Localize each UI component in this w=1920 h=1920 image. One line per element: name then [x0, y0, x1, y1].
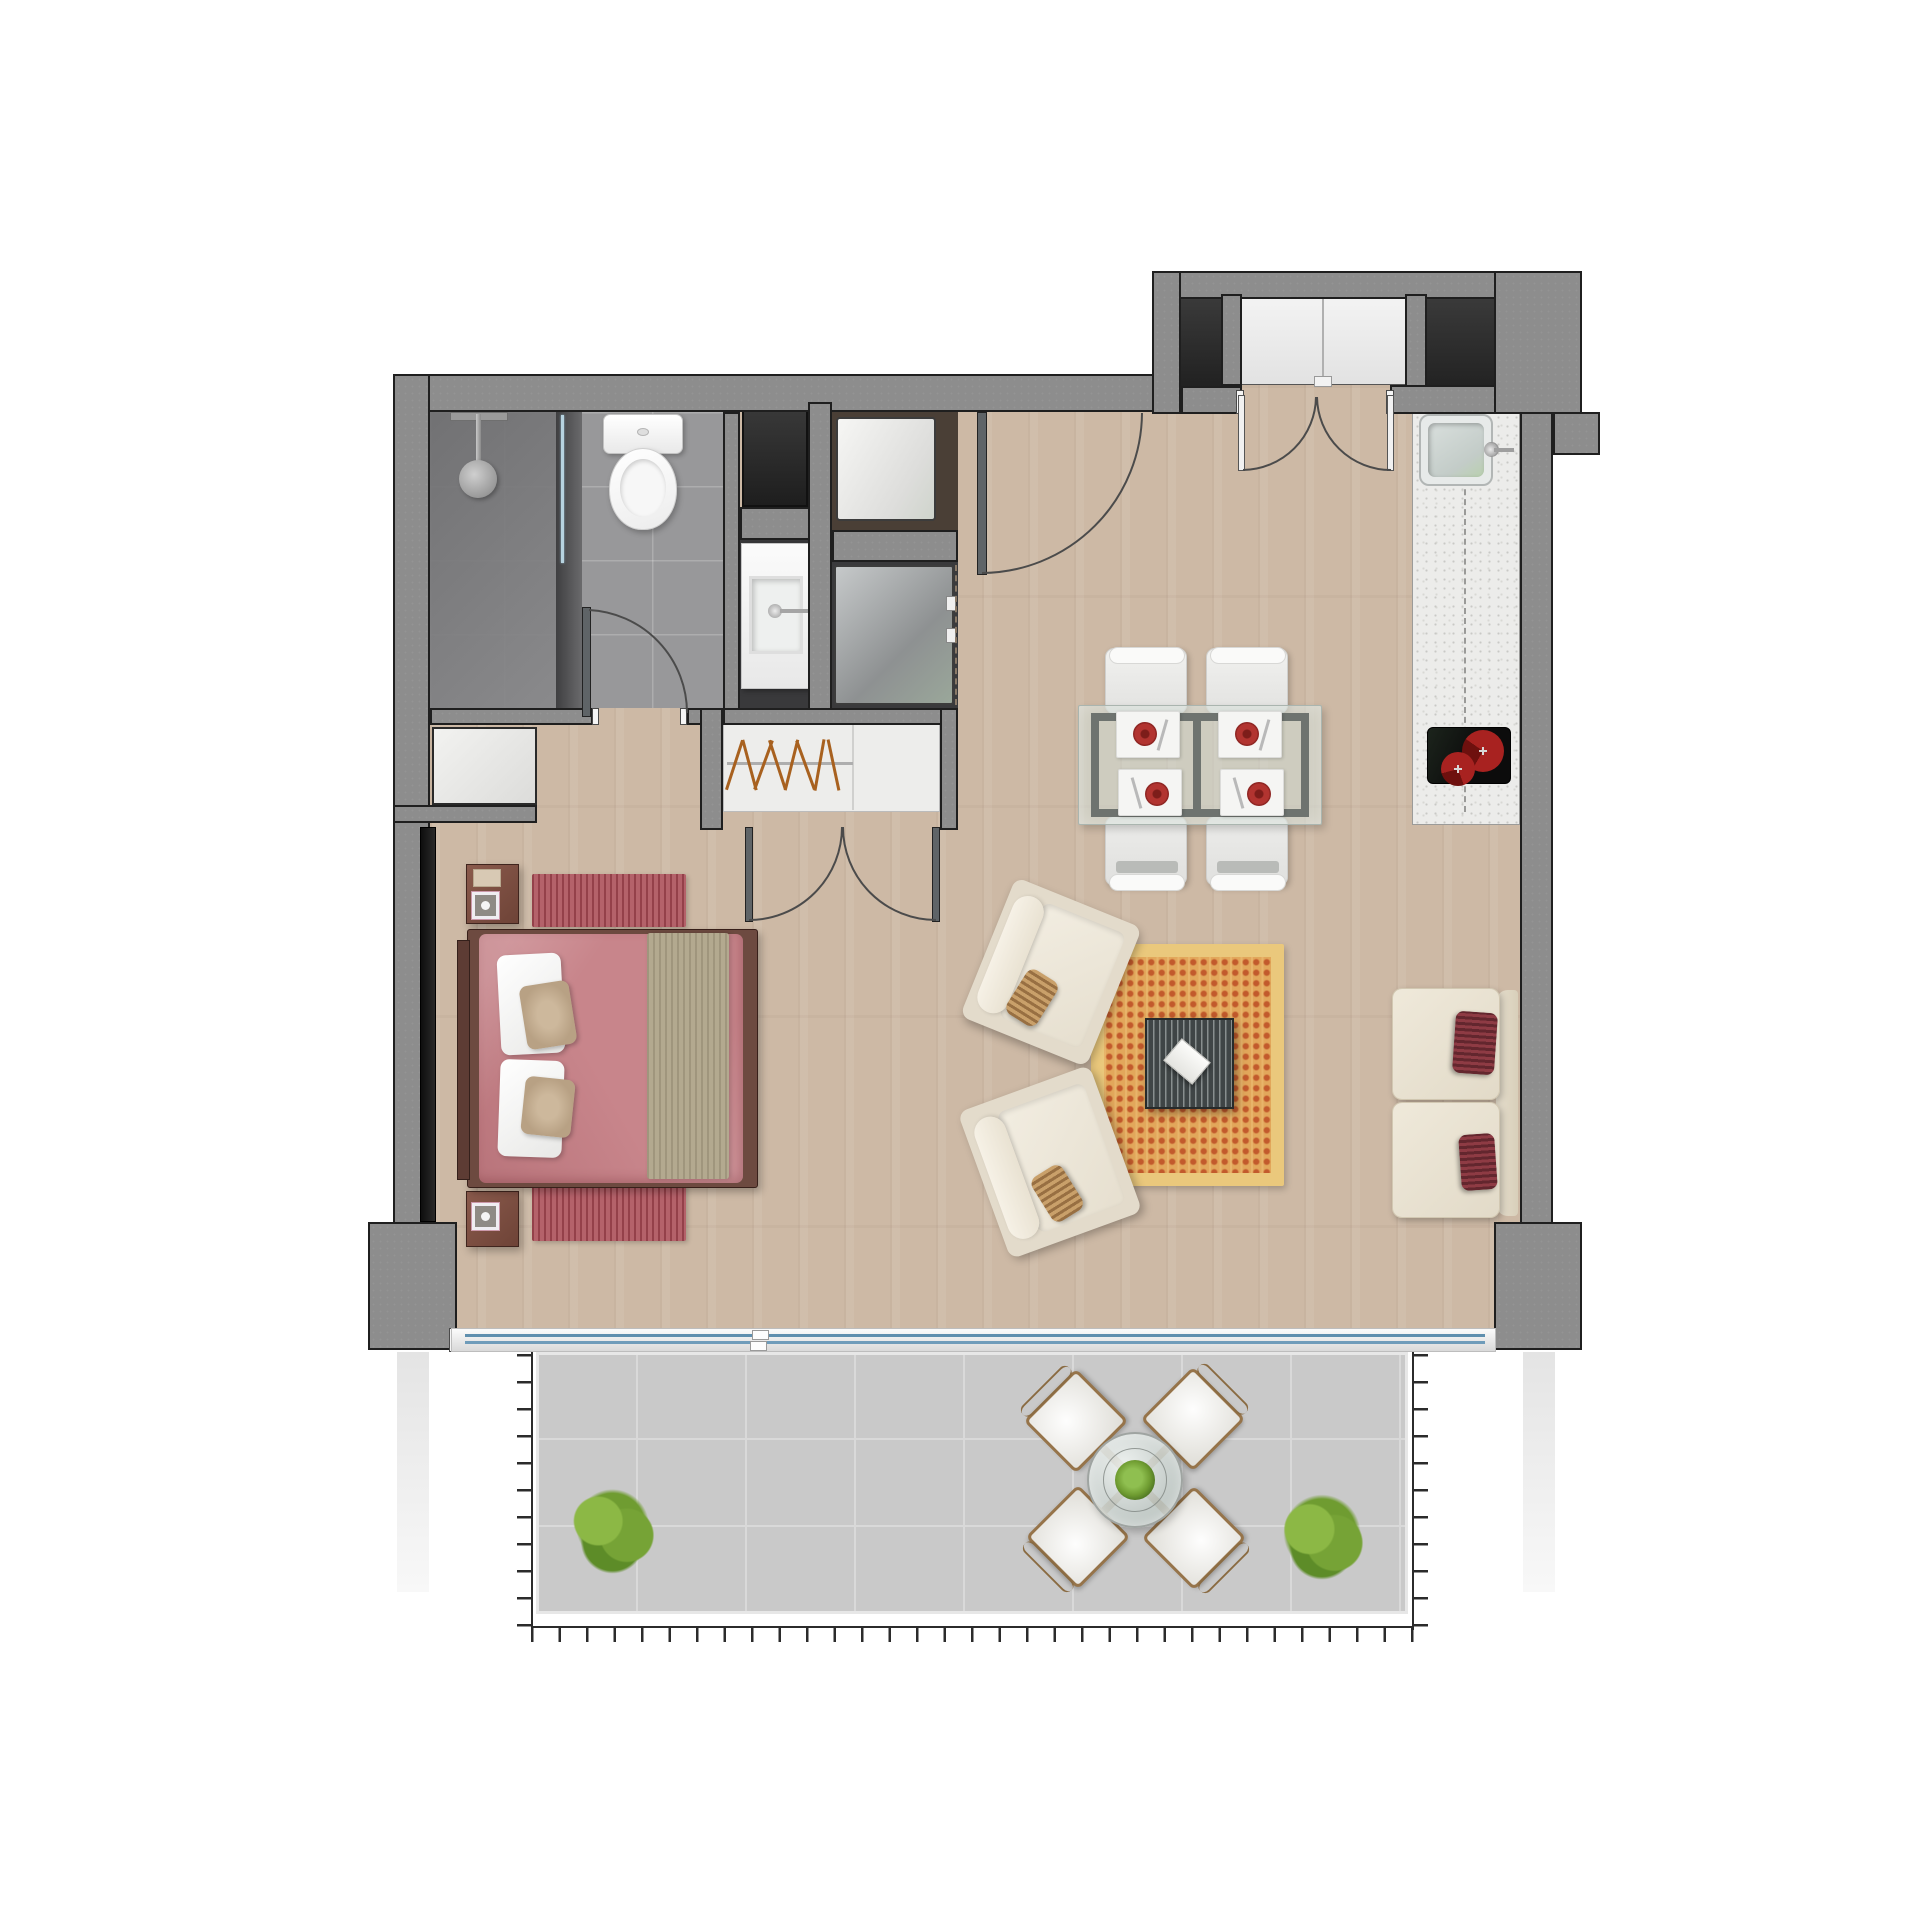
burner-cross-front [1454, 765, 1462, 773]
burner-cross-rear [1479, 747, 1487, 755]
dining-chair-backrest [1210, 874, 1286, 891]
wardrobe-door-leaf-right [932, 827, 940, 922]
wall-wardrobe-left [700, 708, 723, 830]
wall-lobby-left-column [1152, 271, 1181, 414]
toilet-flush-button [637, 428, 649, 436]
red-plate [1235, 722, 1259, 746]
water-heater [836, 417, 936, 521]
wall-top-left-block [393, 374, 1155, 412]
railing-right-ticks [1414, 1354, 1428, 1630]
dining-chair-seat-edge [1217, 861, 1279, 873]
wall-niche-vertical [808, 402, 832, 710]
knife-icon [1131, 777, 1143, 809]
dining-table-frame-crossbar [1193, 713, 1201, 817]
knife-icon [1233, 777, 1245, 809]
outdoor-table-planter [1115, 1460, 1155, 1500]
wall-lobby-mullion-1 [1221, 294, 1242, 386]
entry-door-leaf-right [1387, 395, 1394, 471]
hall-pivot-door-leaf [977, 412, 987, 575]
placemat-bottom-right [1220, 769, 1284, 816]
wardrobe-divider [852, 725, 854, 810]
placemat-bottom-left [1118, 769, 1182, 816]
wall-under-storage [740, 507, 810, 540]
nightstand-top-tray [473, 869, 501, 887]
wall-bathroom-right [723, 412, 740, 725]
elevator-door-split [1322, 294, 1324, 383]
red-plate [1145, 782, 1169, 806]
bedside-rug-top [532, 874, 686, 927]
sliding-glass-line-upper [465, 1334, 1485, 1337]
knife-icon [1259, 719, 1271, 751]
bathroom-door-leaf [582, 607, 591, 717]
pilaster-left [397, 1352, 429, 1592]
dining-chair-bottom-left [1105, 816, 1187, 886]
washer-dashed-opening [955, 565, 957, 705]
shrub-right [1270, 1488, 1374, 1586]
shower-glass-screen [561, 415, 564, 563]
red-plate [1133, 722, 1157, 746]
storage-closet-dark [742, 402, 808, 507]
wall-left-bottom-pier [368, 1222, 457, 1350]
wall-under-cabinet [393, 805, 537, 823]
placemat-top-left [1116, 711, 1180, 758]
dining-chair-bottom-right [1206, 816, 1288, 886]
wall-under-shaft-left [1181, 386, 1242, 414]
kitchen-faucet-spout [1494, 448, 1514, 452]
bed-accent-pillow-1 [518, 979, 577, 1050]
bed-runner-blanket [647, 933, 729, 1179]
red-plate [1247, 782, 1271, 806]
shower-drain-strip [556, 412, 582, 708]
bedroom-cabinet [432, 727, 537, 805]
dining-chair-seat-edge [1116, 861, 1178, 873]
dining-chair-backrest [1109, 647, 1185, 664]
shower-head [459, 460, 497, 498]
wall-bathroom-bottom-left [430, 708, 593, 725]
jamb-bathroom-door-left [592, 708, 599, 725]
wall-wardrobe-right [940, 708, 958, 830]
sliding-door-handle-1 [752, 1330, 769, 1340]
railing-bottom-ticks [531, 1628, 1414, 1642]
railing-left-line [531, 1352, 533, 1630]
wall-lobby-right-block [1494, 271, 1582, 414]
nightstand-top-lamp-glow [481, 901, 490, 910]
elevator-door-bump [1314, 376, 1332, 387]
bedroom-window [420, 827, 436, 1222]
dining-table-glass [1078, 705, 1322, 825]
jamb-bathroom-door-right [680, 708, 687, 725]
shrub-left [565, 1483, 660, 1578]
wall-niche-divider [832, 530, 958, 562]
pilaster-right [1523, 1352, 1555, 1592]
kitchen-sink-basin [1428, 423, 1484, 477]
dining-chair-backrest [1210, 647, 1286, 664]
washing-machine [834, 565, 954, 705]
sofa-pillow-top [1452, 1011, 1498, 1076]
bed-accent-pillow-2 [520, 1076, 576, 1139]
dining-chair-backrest [1109, 874, 1185, 891]
wall-wardrobe-top [723, 708, 958, 725]
knife-icon [1157, 719, 1169, 751]
entry-door-leaf-left [1238, 395, 1245, 471]
railing-left-ticks [517, 1354, 531, 1630]
wall-right-step [1553, 412, 1600, 455]
sliding-door-track [451, 1328, 1496, 1352]
floor-plan-canvas [0, 0, 1920, 1920]
wall-kitchen-right [1520, 412, 1553, 1224]
placemat-top-right [1218, 711, 1282, 758]
sofa-pillow-bottom [1458, 1133, 1498, 1191]
wall-column-bottom-right [1494, 1222, 1582, 1350]
sofa [1392, 988, 1520, 1218]
vanity-faucet-spout [780, 609, 810, 613]
sliding-door-handle-2 [750, 1341, 767, 1351]
nightstand-bottom-lamp-glow [481, 1212, 490, 1221]
toilet-bowl-inner [620, 459, 666, 517]
bed-headboard [457, 940, 470, 1180]
duct-shaft-left [1179, 296, 1223, 396]
wall-under-shaft-right [1390, 385, 1496, 414]
wardrobe-door-leaf-left [745, 827, 753, 922]
sliding-glass-line-lower [465, 1341, 1485, 1344]
bedside-rug-bottom [532, 1183, 686, 1241]
